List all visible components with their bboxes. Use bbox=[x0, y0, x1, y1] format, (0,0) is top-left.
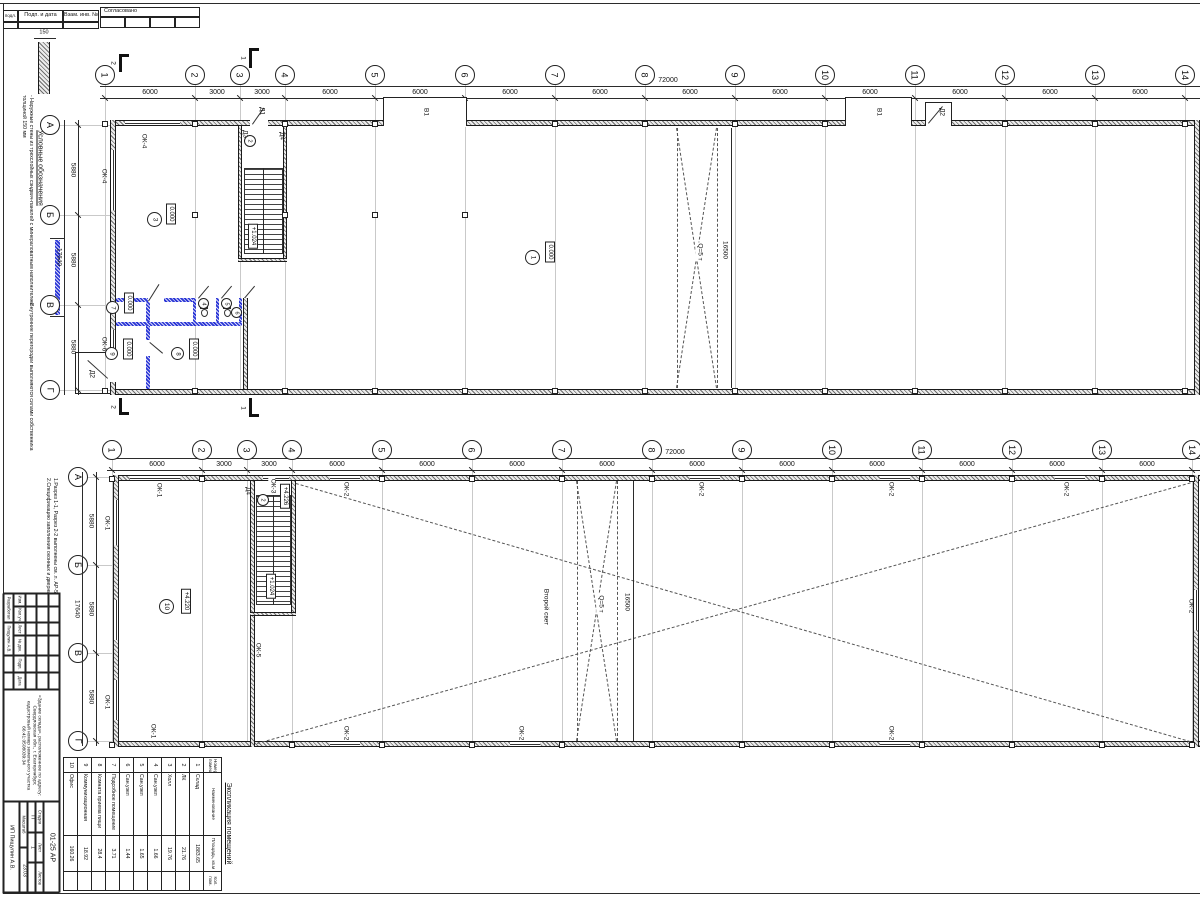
cell-count bbox=[148, 872, 162, 891]
dim-text: 6000 bbox=[1049, 461, 1065, 468]
cell-count bbox=[78, 872, 92, 891]
grid-line bbox=[1005, 85, 1006, 392]
frame-top-line bbox=[0, 3, 1200, 4]
section-label: 2 bbox=[109, 405, 116, 409]
column-marker bbox=[642, 121, 648, 127]
column-marker bbox=[109, 742, 115, 748]
cell-name: Сан.узел bbox=[134, 773, 148, 836]
legend-wall-dim: 150 bbox=[39, 31, 48, 37]
dim-text: 6000 bbox=[1132, 89, 1148, 96]
window-label-ok3: ОК-3 bbox=[269, 478, 276, 495]
room-number-label: 3 bbox=[151, 218, 158, 222]
axis-label: 9 bbox=[730, 72, 740, 77]
axis-label: 6 bbox=[467, 447, 477, 452]
partition-wall bbox=[146, 302, 150, 340]
stamp-col-date: Дата bbox=[13, 672, 24, 689]
column-marker bbox=[559, 742, 565, 748]
legend-item-int: - Внутренние перегородки выполняются сил… bbox=[8, 300, 34, 490]
cell-count bbox=[106, 872, 120, 891]
cell-area: 1.66 bbox=[148, 836, 162, 872]
window-label-ok2: ОК-2 bbox=[342, 482, 349, 497]
section-label: 2 bbox=[109, 61, 116, 65]
stamp-cell bbox=[36, 672, 47, 689]
grid-line bbox=[735, 85, 736, 392]
axis-row-v: В bbox=[68, 643, 88, 663]
stamp-cell bbox=[2, 672, 13, 689]
legend-wall-sample bbox=[38, 42, 50, 94]
room-number-label: 2 bbox=[247, 139, 253, 142]
cell-area: 160.26 bbox=[64, 836, 78, 872]
frame-cell-inv: подл. bbox=[3, 10, 18, 22]
axis-col-14: 14 bbox=[1175, 65, 1195, 85]
stamp-col-doc: № док. bbox=[13, 635, 24, 655]
axis-row-b: Б bbox=[68, 555, 88, 575]
grid-line bbox=[1185, 85, 1186, 392]
axis-row-b: Б bbox=[40, 205, 60, 225]
axis-label: 12 bbox=[1007, 445, 1017, 455]
axis-col-4: 4 bbox=[275, 65, 295, 85]
door-swing bbox=[244, 286, 255, 299]
grid-line bbox=[555, 85, 556, 392]
drawing-sheet: подл. Подп. и дата Взам. инв. № Согласов… bbox=[0, 0, 1200, 900]
gate-label: В1 bbox=[875, 108, 882, 116]
level-mark: +4.226 bbox=[280, 484, 290, 509]
grid-line bbox=[645, 85, 646, 392]
axis-col-8: 8 bbox=[642, 440, 662, 460]
column-marker bbox=[1009, 742, 1015, 748]
cell-area: 28.4 bbox=[92, 836, 106, 872]
door-swing bbox=[149, 342, 163, 354]
table-row: 9Коммуникационная18.92 bbox=[78, 758, 92, 891]
frame-cell-empty bbox=[18, 22, 63, 29]
window-label-ok2: ОК-2 bbox=[1187, 599, 1194, 614]
cell-num: 8 bbox=[92, 758, 106, 773]
table-row: 5Сан.узел1.65 bbox=[134, 758, 148, 891]
stamp-cell bbox=[2, 655, 13, 672]
axis-label: 7 bbox=[550, 72, 560, 77]
stamp-col-izm: Изм. bbox=[13, 593, 24, 606]
axis-label: А bbox=[45, 122, 55, 128]
dim-text: 6000 bbox=[689, 461, 705, 468]
column-marker bbox=[822, 388, 828, 394]
column-marker bbox=[372, 121, 378, 127]
table-header-row: Номер помещ. Наименование Площадь, кв.м … bbox=[204, 758, 222, 891]
axis-label: 4 bbox=[280, 72, 290, 77]
dim-text: 6000 bbox=[592, 89, 608, 96]
cell-name: Коммуникационная bbox=[78, 773, 92, 836]
grid-line bbox=[1095, 85, 1096, 392]
grid-line bbox=[1012, 460, 1013, 747]
cell-num: 2 bbox=[176, 758, 190, 773]
dim-text: 16500 bbox=[721, 240, 728, 260]
column-marker bbox=[282, 121, 288, 127]
legend-item-ext: - Наружные стены из трехслойных сэндвич-… bbox=[8, 95, 34, 305]
dim-text: 6000 bbox=[599, 461, 615, 468]
cell-name: Комната приема пищи bbox=[92, 773, 106, 836]
dim-total-text: 72000 bbox=[658, 77, 677, 84]
room-number-wc3: 6 bbox=[231, 307, 242, 318]
axis-col-6: 6 bbox=[462, 440, 482, 460]
grid-line bbox=[88, 653, 113, 654]
frame-cell-vzam-label: Взам. инв. № bbox=[64, 13, 98, 19]
column-marker bbox=[469, 476, 475, 482]
door-label: Д1 bbox=[258, 107, 265, 115]
dim-text: 6000 bbox=[1139, 461, 1155, 468]
column-marker bbox=[1099, 742, 1105, 748]
stamp-cell bbox=[25, 593, 36, 606]
approved-grid-cell bbox=[175, 17, 200, 28]
stamp-stage-value: П bbox=[27, 801, 35, 832]
grid-line bbox=[202, 460, 203, 747]
column-marker bbox=[192, 212, 198, 218]
axis-col-9: 9 bbox=[725, 65, 745, 85]
axis-label: В bbox=[45, 302, 55, 308]
cell-count bbox=[162, 872, 176, 891]
room-number-office: 10 bbox=[159, 599, 174, 614]
section-mark bbox=[119, 54, 129, 57]
cell-num: 4 bbox=[148, 758, 162, 773]
stamp-scale-value: 23.03 bbox=[19, 847, 27, 893]
stamp-cell bbox=[48, 622, 59, 635]
void-label: Второй свет bbox=[542, 589, 549, 625]
cell-area: 1883.65 bbox=[190, 836, 204, 872]
dim-text: 5880 bbox=[87, 602, 94, 616]
cell-area: 21.76 bbox=[176, 836, 190, 872]
approved-grid-cell bbox=[100, 17, 125, 28]
window-ok2 bbox=[330, 475, 360, 481]
dim-text: 6000 bbox=[329, 461, 345, 468]
dim-text: 6000 bbox=[412, 89, 428, 96]
stamp-sheets-label: Листов bbox=[35, 862, 43, 893]
window-label-ok1: ОК-1 bbox=[103, 516, 110, 531]
grid-line bbox=[922, 460, 923, 747]
axis-label: 1 bbox=[107, 447, 117, 452]
frame-cell-sign-date-label: Подп. и дата bbox=[24, 13, 56, 19]
level-mark: +1.024 bbox=[248, 224, 258, 249]
axis-col-2: 2 bbox=[185, 65, 205, 85]
door-swing bbox=[198, 286, 209, 299]
table-row: 2ЛК21.76 bbox=[176, 758, 190, 891]
door-swing bbox=[221, 286, 232, 299]
column-marker bbox=[1099, 476, 1105, 482]
axis-col-9: 9 bbox=[732, 440, 752, 460]
window-ok2 bbox=[880, 741, 910, 747]
room-number-hall: 3 bbox=[147, 212, 162, 227]
stamp-sheet-value: 1 bbox=[27, 832, 35, 862]
axis-row-g: Г bbox=[68, 731, 88, 751]
dim-text: 6000 bbox=[509, 461, 525, 468]
wall-stair bbox=[283, 126, 287, 260]
grid-line bbox=[465, 85, 466, 392]
stamp-cell bbox=[36, 606, 47, 622]
legend-sample-tick bbox=[50, 238, 64, 239]
cell-count bbox=[176, 872, 190, 891]
dim-text: 6000 bbox=[149, 461, 165, 468]
axis-col-3: 3 bbox=[237, 440, 257, 460]
axis-label: 11 bbox=[910, 70, 920, 79]
cell-area: 19.76 bbox=[162, 836, 176, 872]
level-mark: +4.220 bbox=[181, 589, 191, 614]
grid-line bbox=[60, 305, 110, 306]
window-label-ok2: ОК-2 bbox=[342, 726, 349, 741]
stamp-cell bbox=[36, 635, 47, 655]
column-marker bbox=[1189, 476, 1195, 482]
door-swing bbox=[148, 284, 159, 301]
cell-num: 9 bbox=[78, 758, 92, 773]
axis-col-4: 4 bbox=[282, 440, 302, 460]
grid-line bbox=[1102, 460, 1103, 747]
axis-label: 8 bbox=[640, 72, 650, 77]
column-marker bbox=[192, 388, 198, 394]
room-number-label: 8 bbox=[175, 352, 181, 355]
column-marker bbox=[642, 388, 648, 394]
cell-name: Холл bbox=[162, 773, 176, 836]
table-row: 1Склад1883.65 bbox=[190, 758, 204, 891]
column-marker bbox=[552, 388, 558, 394]
axis-col-8: 8 bbox=[635, 65, 655, 85]
column-marker bbox=[109, 476, 115, 482]
frame-cell-empty bbox=[63, 22, 99, 29]
table-row: 4Сан.узел1.66 bbox=[148, 758, 162, 891]
axis-label: 5 bbox=[377, 447, 387, 452]
window-label-ok4: ОК-4 bbox=[100, 169, 107, 184]
dim-line bbox=[731, 128, 732, 388]
partition-wall bbox=[146, 356, 150, 389]
column-marker bbox=[552, 121, 558, 127]
dim-text: 6000 bbox=[502, 89, 518, 96]
cell-num: 10 bbox=[64, 758, 78, 773]
dim-total-line bbox=[100, 86, 1200, 87]
stamp-sheets-value bbox=[27, 862, 35, 893]
axis-col-11: 11 bbox=[905, 65, 925, 85]
legend-dim-line bbox=[34, 38, 56, 39]
window-label-ok6: ОК-6 bbox=[100, 337, 107, 352]
axis-label: 6 bbox=[460, 72, 470, 77]
level-mark: 0.000 bbox=[189, 338, 199, 359]
room-number-stair: 2 bbox=[244, 135, 256, 147]
crane-rail-line bbox=[677, 128, 678, 388]
column-marker bbox=[379, 476, 385, 482]
cell-count bbox=[120, 872, 134, 891]
wall-stair bbox=[238, 258, 287, 262]
door-label: Д2 bbox=[88, 370, 95, 378]
dim-total-text: 72000 bbox=[665, 449, 684, 456]
column-marker bbox=[372, 388, 378, 394]
stamp-developer-name: Пищулин А.В. bbox=[2, 622, 13, 655]
legend-title: Условные обозначения bbox=[37, 130, 44, 206]
dim-text: 6000 bbox=[959, 461, 975, 468]
stamp-sheet-label: Лист bbox=[35, 832, 43, 862]
axis-row-a: А bbox=[68, 467, 88, 487]
stamp-cell bbox=[25, 672, 36, 689]
column-marker bbox=[559, 476, 565, 482]
column-marker bbox=[1092, 121, 1098, 127]
axis-label: 9 bbox=[737, 447, 747, 452]
window-ok1 bbox=[113, 500, 119, 545]
room-number-warehouse: 1 bbox=[525, 250, 540, 265]
room-number-7: 7 bbox=[106, 301, 119, 314]
column-marker bbox=[1182, 121, 1188, 127]
axis-label: 10 bbox=[820, 70, 830, 80]
dim-text: 5880 bbox=[69, 163, 76, 177]
section-mark bbox=[119, 56, 122, 72]
axis-col-6: 6 bbox=[455, 65, 475, 85]
room-number-label: 2 bbox=[260, 498, 266, 501]
axis-col-11: 11 bbox=[912, 440, 932, 460]
room-number-label: 6 bbox=[234, 311, 240, 314]
cell-name: Сан.узел bbox=[148, 773, 162, 836]
dim-text: 6000 bbox=[869, 461, 885, 468]
column-marker bbox=[462, 388, 468, 394]
window-label-ok2: ОК-2 bbox=[517, 726, 524, 741]
window-ok4 bbox=[110, 150, 116, 210]
cell-num: 3 bbox=[162, 758, 176, 773]
grid-line bbox=[382, 460, 383, 747]
frame-cell-vzam: Взам. инв. № bbox=[63, 10, 99, 22]
dim-total-text: 17640 bbox=[73, 600, 80, 618]
column-marker bbox=[732, 388, 738, 394]
window-label-ok2: ОК-2 bbox=[697, 482, 704, 497]
column-marker bbox=[102, 388, 108, 394]
axis-col-1: 1 bbox=[95, 65, 115, 85]
stamp-stage-label: Стадия bbox=[35, 801, 43, 832]
cell-area: 18.92 bbox=[78, 836, 92, 872]
partition-wall bbox=[164, 298, 193, 302]
window-ok4 bbox=[125, 120, 180, 126]
dim-text: 5880 bbox=[87, 690, 94, 704]
grid-line bbox=[247, 460, 248, 747]
stamp-cell bbox=[48, 655, 59, 672]
column-marker bbox=[829, 476, 835, 482]
legend-sample-tick bbox=[50, 316, 64, 317]
axis-col-10: 10 bbox=[815, 65, 835, 85]
crane-rail-line bbox=[617, 481, 618, 741]
axis-col-5: 5 bbox=[365, 65, 385, 85]
grid-line bbox=[60, 215, 110, 216]
wall-interior bbox=[291, 481, 296, 615]
room-number-8: 8 bbox=[171, 347, 184, 360]
wall-interior bbox=[243, 298, 248, 389]
dim-text: 6000 bbox=[952, 89, 968, 96]
grid-line bbox=[652, 460, 653, 747]
window-ok1 bbox=[113, 680, 119, 720]
stamp-cell bbox=[25, 622, 36, 635]
crane-rail-line bbox=[717, 128, 718, 388]
stamp-developer-label: Разработал bbox=[2, 593, 13, 622]
cell-name: ЛК bbox=[176, 773, 190, 836]
dim-chain-line bbox=[100, 98, 1200, 99]
dim-text: 3000 bbox=[261, 461, 277, 468]
axis-col-13: 13 bbox=[1092, 440, 1112, 460]
dim-text: 16500 bbox=[623, 592, 630, 612]
axis-label: 8 bbox=[647, 447, 657, 452]
axis-label: 4 bbox=[287, 447, 297, 452]
window-label-ok5: ОК-5 bbox=[254, 643, 261, 658]
section-label: 1 bbox=[239, 56, 246, 60]
stamp-col-podp: Подп. bbox=[13, 655, 24, 672]
table-row: 8Комната приема пищи28.4 bbox=[92, 758, 106, 891]
table-row: 7Подсобное помещение3.71 bbox=[106, 758, 120, 891]
axis-label: 10 bbox=[827, 445, 837, 455]
stamp-cell bbox=[25, 606, 36, 622]
room-number-label: 9 bbox=[109, 352, 115, 355]
axis-label: 13 bbox=[1090, 70, 1100, 80]
section-mark bbox=[249, 414, 259, 417]
level-mark: +1.024 bbox=[266, 574, 276, 599]
door-label: Д4 bbox=[278, 132, 285, 140]
column-marker bbox=[1009, 476, 1015, 482]
frame-cell-empty bbox=[3, 22, 18, 29]
window-ok2 bbox=[510, 741, 540, 747]
approved-label: Согласовано bbox=[104, 9, 137, 15]
stamp-cell bbox=[36, 622, 47, 635]
table-row: 6Сан.узел1.44 bbox=[120, 758, 134, 891]
explication-table: Номер помещ. Наименование Площадь, кв.м … bbox=[63, 757, 222, 891]
window-label-ok2: ОК-2 bbox=[887, 482, 894, 497]
axis-label: 5 bbox=[370, 72, 380, 77]
grid-line bbox=[825, 85, 826, 392]
wall-exterior-top bbox=[110, 120, 1200, 126]
axis-label: 3 bbox=[235, 72, 245, 77]
column-marker bbox=[1002, 121, 1008, 127]
axis-col-1: 1 bbox=[102, 440, 122, 460]
cell-count bbox=[134, 872, 148, 891]
grid-line bbox=[742, 460, 743, 747]
gate-label: В1 bbox=[422, 108, 429, 116]
room-number-label: 5 bbox=[224, 302, 230, 305]
dim-text: 6000 bbox=[1042, 89, 1058, 96]
stamp-cell bbox=[36, 655, 47, 672]
cell-count bbox=[92, 872, 106, 891]
cell-name: Подсобное помещение bbox=[106, 773, 120, 836]
column-marker bbox=[919, 742, 925, 748]
column-marker bbox=[1002, 388, 1008, 394]
window-label-ok2: ОК-2 bbox=[887, 726, 894, 741]
cell-name: Офис bbox=[64, 773, 78, 836]
level-mark: 0.000 bbox=[123, 338, 133, 359]
dim-total-text: 17640 bbox=[55, 248, 62, 266]
section-mark bbox=[249, 50, 252, 68]
window-label-ok4: ОК-4 bbox=[140, 134, 147, 149]
room-number-wc2: 5 bbox=[221, 298, 232, 309]
window-label-ok1: ОК-1 bbox=[155, 483, 162, 498]
axis-label: 13 bbox=[1097, 445, 1107, 455]
frame-cell-inv-label: подл. bbox=[5, 14, 16, 19]
dim-text: 6000 bbox=[779, 461, 795, 468]
window-label-ok1: ОК-1 bbox=[149, 724, 156, 739]
door-label: Д2 bbox=[938, 108, 945, 116]
axis-label: 12 bbox=[1000, 70, 1010, 80]
stall-wall bbox=[193, 322, 242, 326]
level-mark: 0.000 bbox=[124, 292, 134, 313]
dim-text: 6000 bbox=[682, 89, 698, 96]
grid-line bbox=[375, 85, 376, 392]
door-label: Д4 bbox=[244, 487, 251, 495]
stamp-cell bbox=[25, 635, 36, 655]
axis-col-7: 7 bbox=[545, 65, 565, 85]
grid-line bbox=[562, 460, 563, 747]
column-marker bbox=[192, 121, 198, 127]
partition-wall bbox=[116, 322, 193, 326]
window-ok2 bbox=[1055, 475, 1085, 481]
column-marker bbox=[282, 388, 288, 394]
dim-line bbox=[633, 481, 634, 741]
grid-line bbox=[915, 85, 916, 392]
wall-exterior-right bbox=[1194, 120, 1200, 395]
crane-capacity-label: Q=5 т bbox=[597, 594, 604, 613]
column-marker bbox=[379, 742, 385, 748]
axis-col-2: 2 bbox=[192, 440, 212, 460]
